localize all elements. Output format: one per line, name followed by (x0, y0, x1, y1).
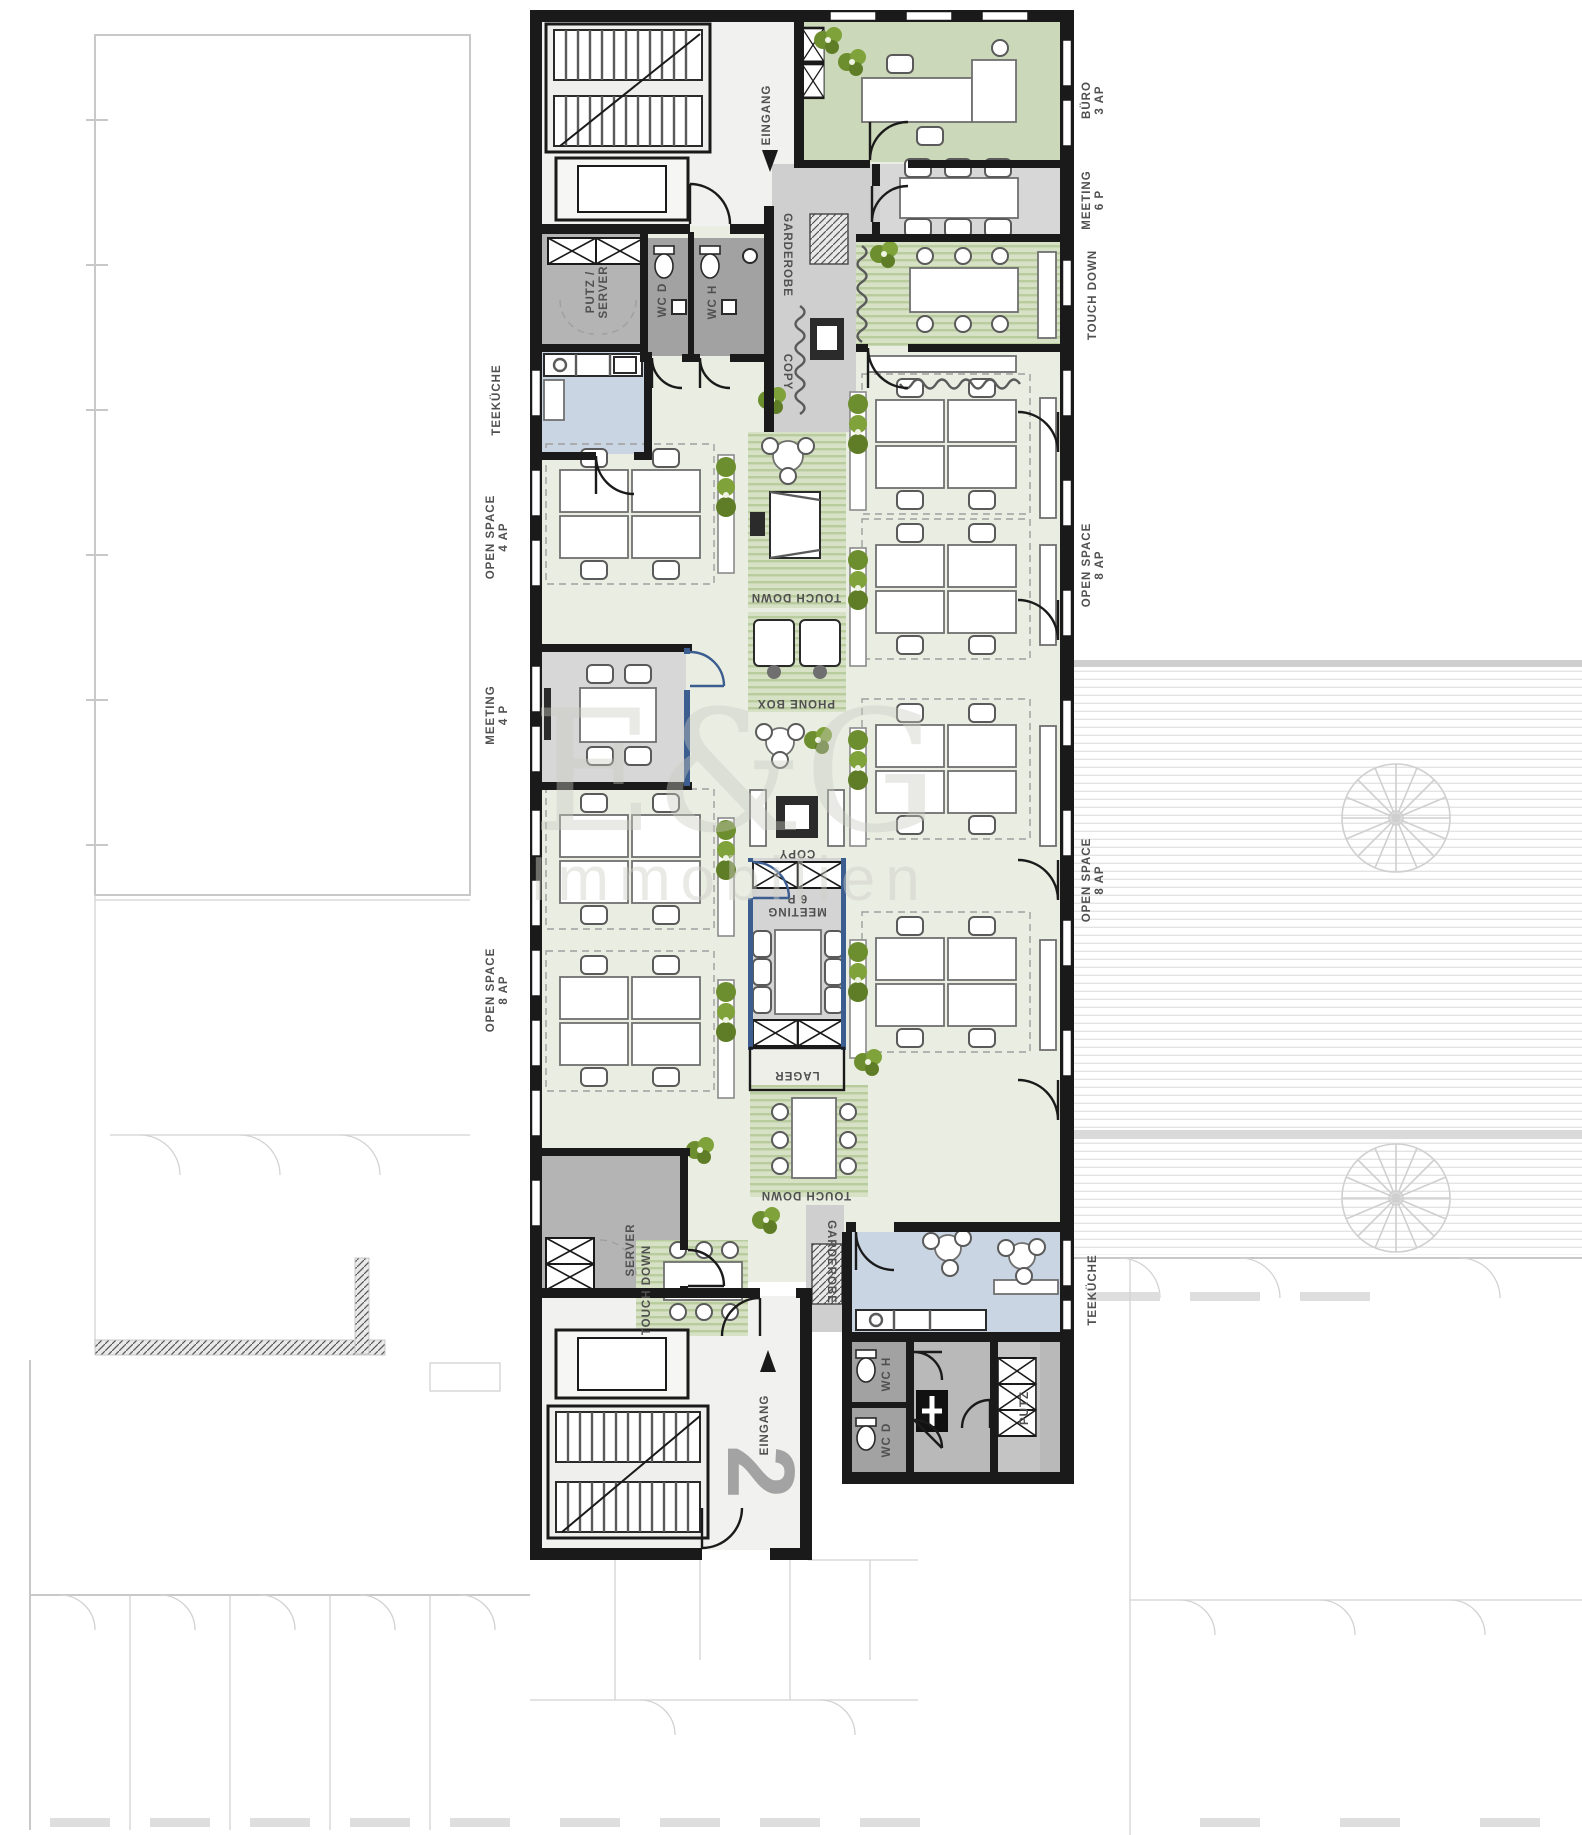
sideboard (1040, 545, 1056, 645)
label-touch-down-mid: TOUCH DOWN (751, 591, 841, 603)
label-garderobe-bottom: GARDEROBE (825, 1220, 837, 1304)
sideboard (1040, 398, 1056, 518)
plant-strip-icon (716, 455, 736, 573)
staircase-bottom-symbol (548, 1406, 708, 1538)
label-buero-3ap: BÜRO3 AP (1080, 81, 1106, 119)
label-teekueche-left: TEEKÜCHE (490, 364, 503, 435)
lager-room (750, 1048, 844, 1090)
label-lager: LAGER (774, 1069, 819, 1081)
label-wc-d-bottom: WC D (881, 1423, 893, 1458)
elevator-bottom-symbol (556, 1330, 688, 1398)
label-open-space-4ap: OPEN SPACE4 AP (485, 495, 510, 580)
label-eingang-top: EINGANG (761, 85, 773, 146)
watermark-text: Immobilien (530, 845, 930, 914)
plant-strip-icon (716, 980, 736, 1098)
label-copy-top: COPY (781, 354, 793, 391)
sideboard (1040, 726, 1056, 846)
label-putz-server: PUTZ /SERVER (585, 265, 610, 318)
label-touch-down-bottom-left: TOUCH DOWN (641, 1245, 653, 1335)
sideboard (868, 356, 1016, 372)
elevator-top-symbol (556, 158, 688, 220)
plant-strip-icon (848, 940, 868, 1058)
watermark: E&G Immobilien (530, 674, 938, 914)
plant-strip-icon (848, 548, 868, 666)
context-lower-center-rooms (530, 1560, 920, 1827)
floor-plan-drawing: TEEKÜCHE OPEN SPACE4 AP MEETING4 P OPEN … (0, 0, 1582, 1835)
label-garderobe-top: GARDEROBE (781, 213, 793, 297)
label-wc-h-bottom: WC H (881, 1357, 893, 1392)
label-teekueche-bottom: TEEKÜCHE (1086, 1254, 1099, 1325)
label-meeting-6p-right: MEETING6 P (1081, 170, 1106, 229)
plant-strip-icon (848, 392, 868, 510)
label-open-space-8ap-left: OPEN SPACE8 AP (485, 948, 510, 1033)
touch-down-bottom-right-furniture (772, 1098, 856, 1178)
context-lower-left-rooms (30, 1360, 530, 1830)
spiral-stair-icon (1342, 764, 1450, 872)
label-open-space-8ap-right-1: OPEN SPACE8 AP (1081, 523, 1106, 608)
floor-number: 2 (707, 1445, 814, 1498)
label-meeting-4p: MEETING4 P (485, 685, 510, 744)
floor-plan-page: TEEKÜCHE OPEN SPACE4 AP MEETING4 P OPEN … (0, 0, 1582, 1835)
label-wc-h-top: WC H (707, 285, 719, 320)
label-touch-down-bottom-right: TOUCH DOWN (761, 1189, 851, 1201)
watermark-logo: E&G (532, 674, 938, 870)
staircase-top-symbol (546, 24, 710, 152)
label-putz-bottom: PUTZ (1019, 1391, 1031, 1425)
spiral-stair-icon (1342, 1144, 1450, 1252)
label-touch-down-right: TOUCH DOWN (1087, 250, 1099, 340)
label-server-bottom: SERVER (625, 1223, 637, 1276)
meeting-6p-table (900, 159, 1018, 237)
context-left-building (86, 35, 470, 1355)
label-wc-d-top: WC D (657, 283, 669, 318)
coat-rack-icon (810, 214, 848, 264)
sideboard (1040, 940, 1056, 1050)
